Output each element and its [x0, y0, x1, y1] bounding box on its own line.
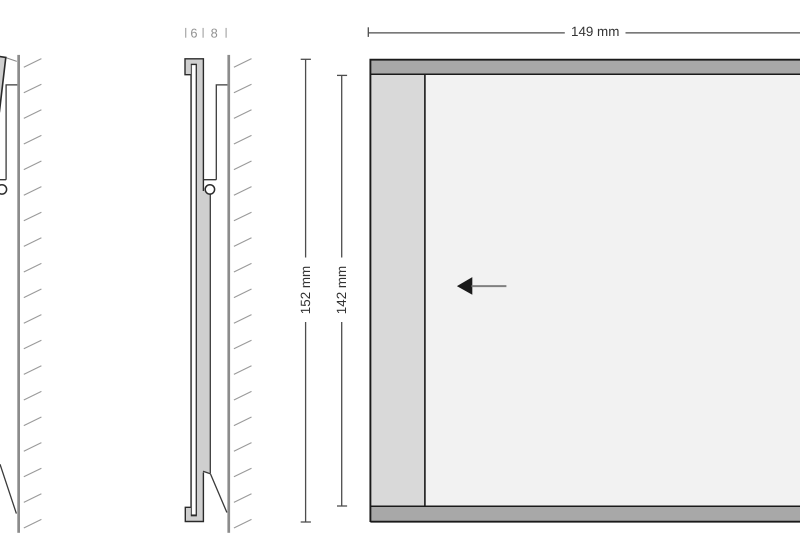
svg-text:152 mm: 152 mm: [298, 266, 313, 314]
svg-text:142 mm: 142 mm: [334, 266, 349, 314]
svg-text:149 mm: 149 mm: [571, 24, 619, 39]
svg-text:6: 6: [190, 25, 197, 40]
svg-text:8: 8: [211, 25, 218, 40]
